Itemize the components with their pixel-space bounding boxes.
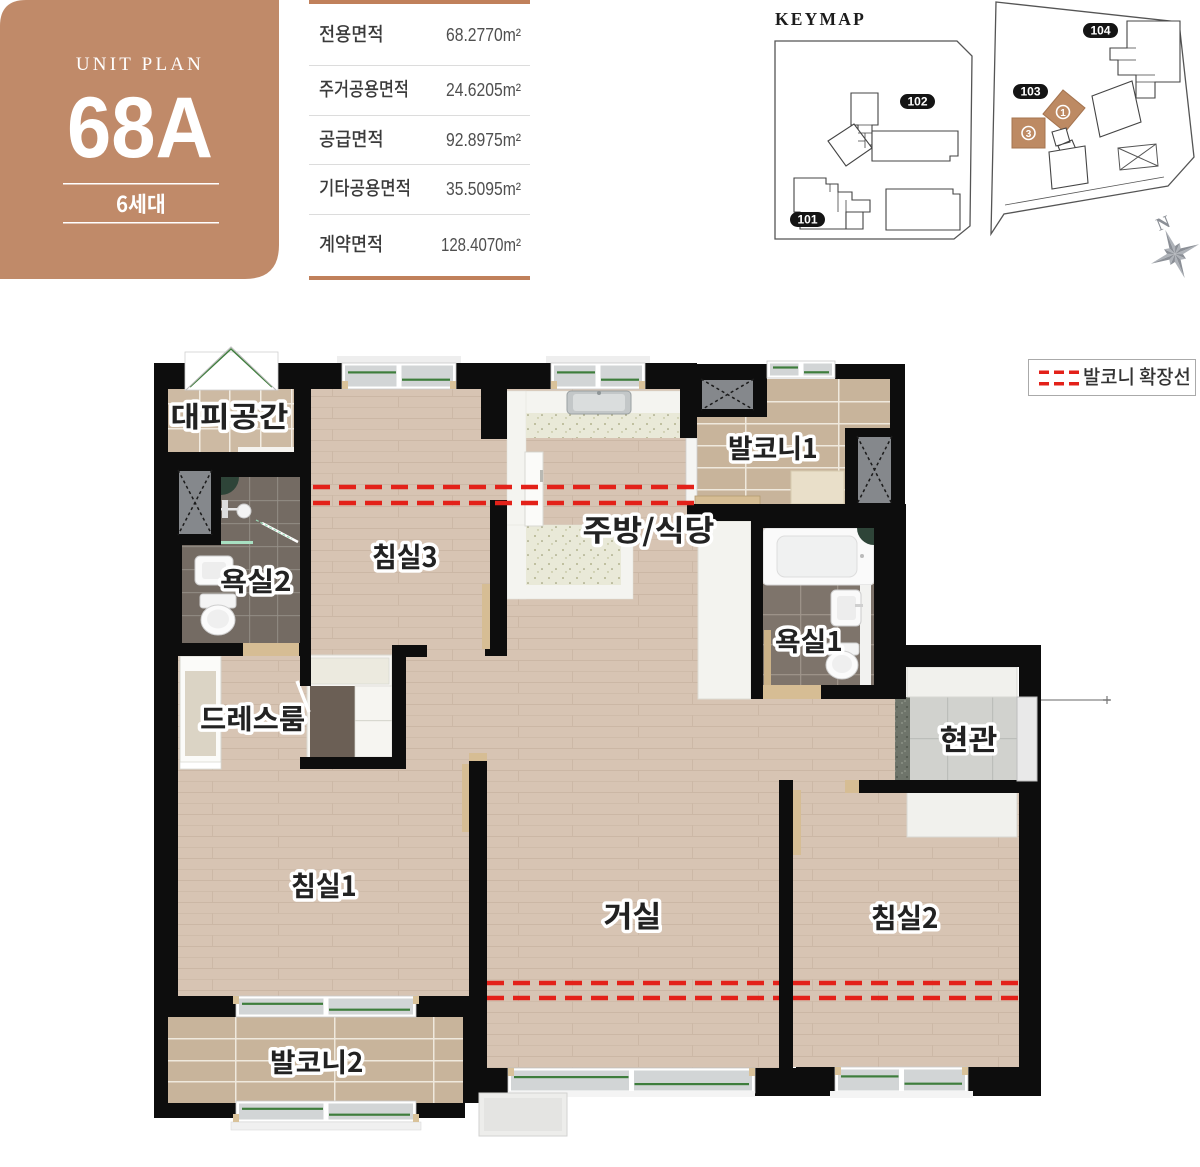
svg-text:UNIT PLAN: UNIT PLAN xyxy=(76,54,204,75)
svg-text:1: 1 xyxy=(1060,108,1066,119)
svg-text:24.6205m²: 24.6205m² xyxy=(446,80,521,100)
svg-text:92.8975m²: 92.8975m² xyxy=(446,130,521,150)
svg-text:KEYMAP: KEYMAP xyxy=(775,9,866,29)
svg-text:104: 104 xyxy=(1090,24,1110,38)
svg-text:68A: 68A xyxy=(67,80,213,176)
svg-text:101: 101 xyxy=(797,213,817,227)
svg-text:3: 3 xyxy=(1026,129,1032,140)
svg-text:102: 102 xyxy=(907,95,927,109)
svg-text:35.5095m²: 35.5095m² xyxy=(446,179,521,199)
svg-text:103: 103 xyxy=(1020,85,1040,99)
svg-text:128.4070m²: 128.4070m² xyxy=(441,235,521,255)
svg-text:68.2770m²: 68.2770m² xyxy=(446,25,521,45)
